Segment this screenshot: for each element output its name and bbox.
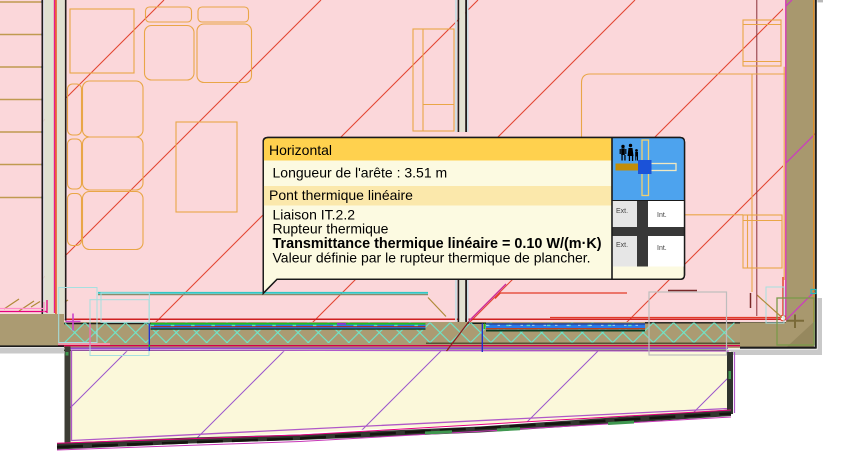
svg-text:Horizontal: Horizontal: [269, 142, 332, 158]
svg-text:Ext.: Ext.: [616, 242, 628, 249]
svg-text:Rupteur thermique: Rupteur thermique: [273, 221, 389, 237]
svg-text:Ext.: Ext.: [616, 208, 628, 215]
svg-text:Pont thermique linéaire: Pont thermique linéaire: [269, 187, 413, 203]
svg-text:Valeur définie par le rupteur: Valeur définie par le rupteur thermique …: [273, 250, 591, 266]
svg-text:Int.: Int.: [657, 212, 667, 219]
svg-text:Longueur de l'arête : 3.51 m: Longueur de l'arête : 3.51 m: [273, 165, 448, 181]
svg-text:Int.: Int.: [657, 245, 667, 252]
